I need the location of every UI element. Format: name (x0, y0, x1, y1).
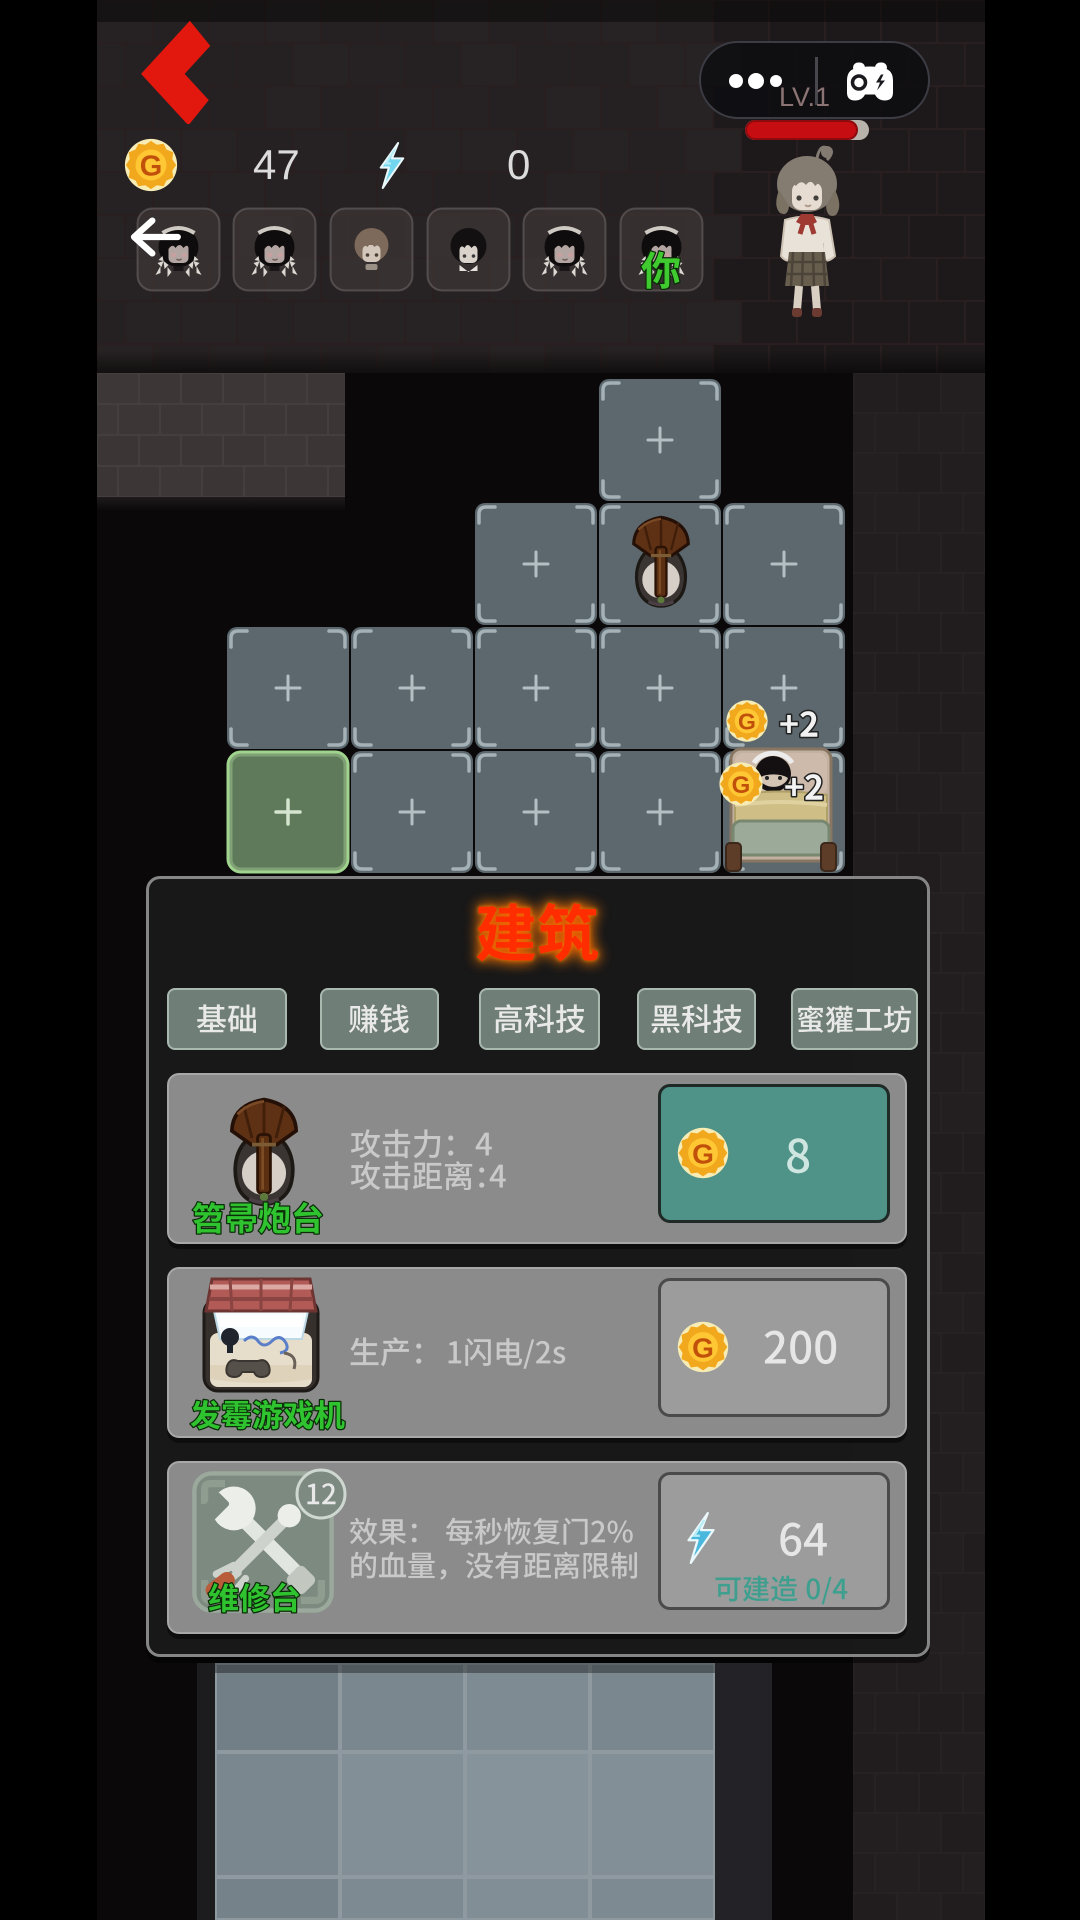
svg-text:G: G (732, 772, 751, 799)
svg-text:G: G (692, 1138, 714, 1169)
svg-text:G: G (738, 708, 756, 734)
svg-text:G: G (692, 1332, 714, 1363)
svg-text:G: G (140, 151, 163, 183)
